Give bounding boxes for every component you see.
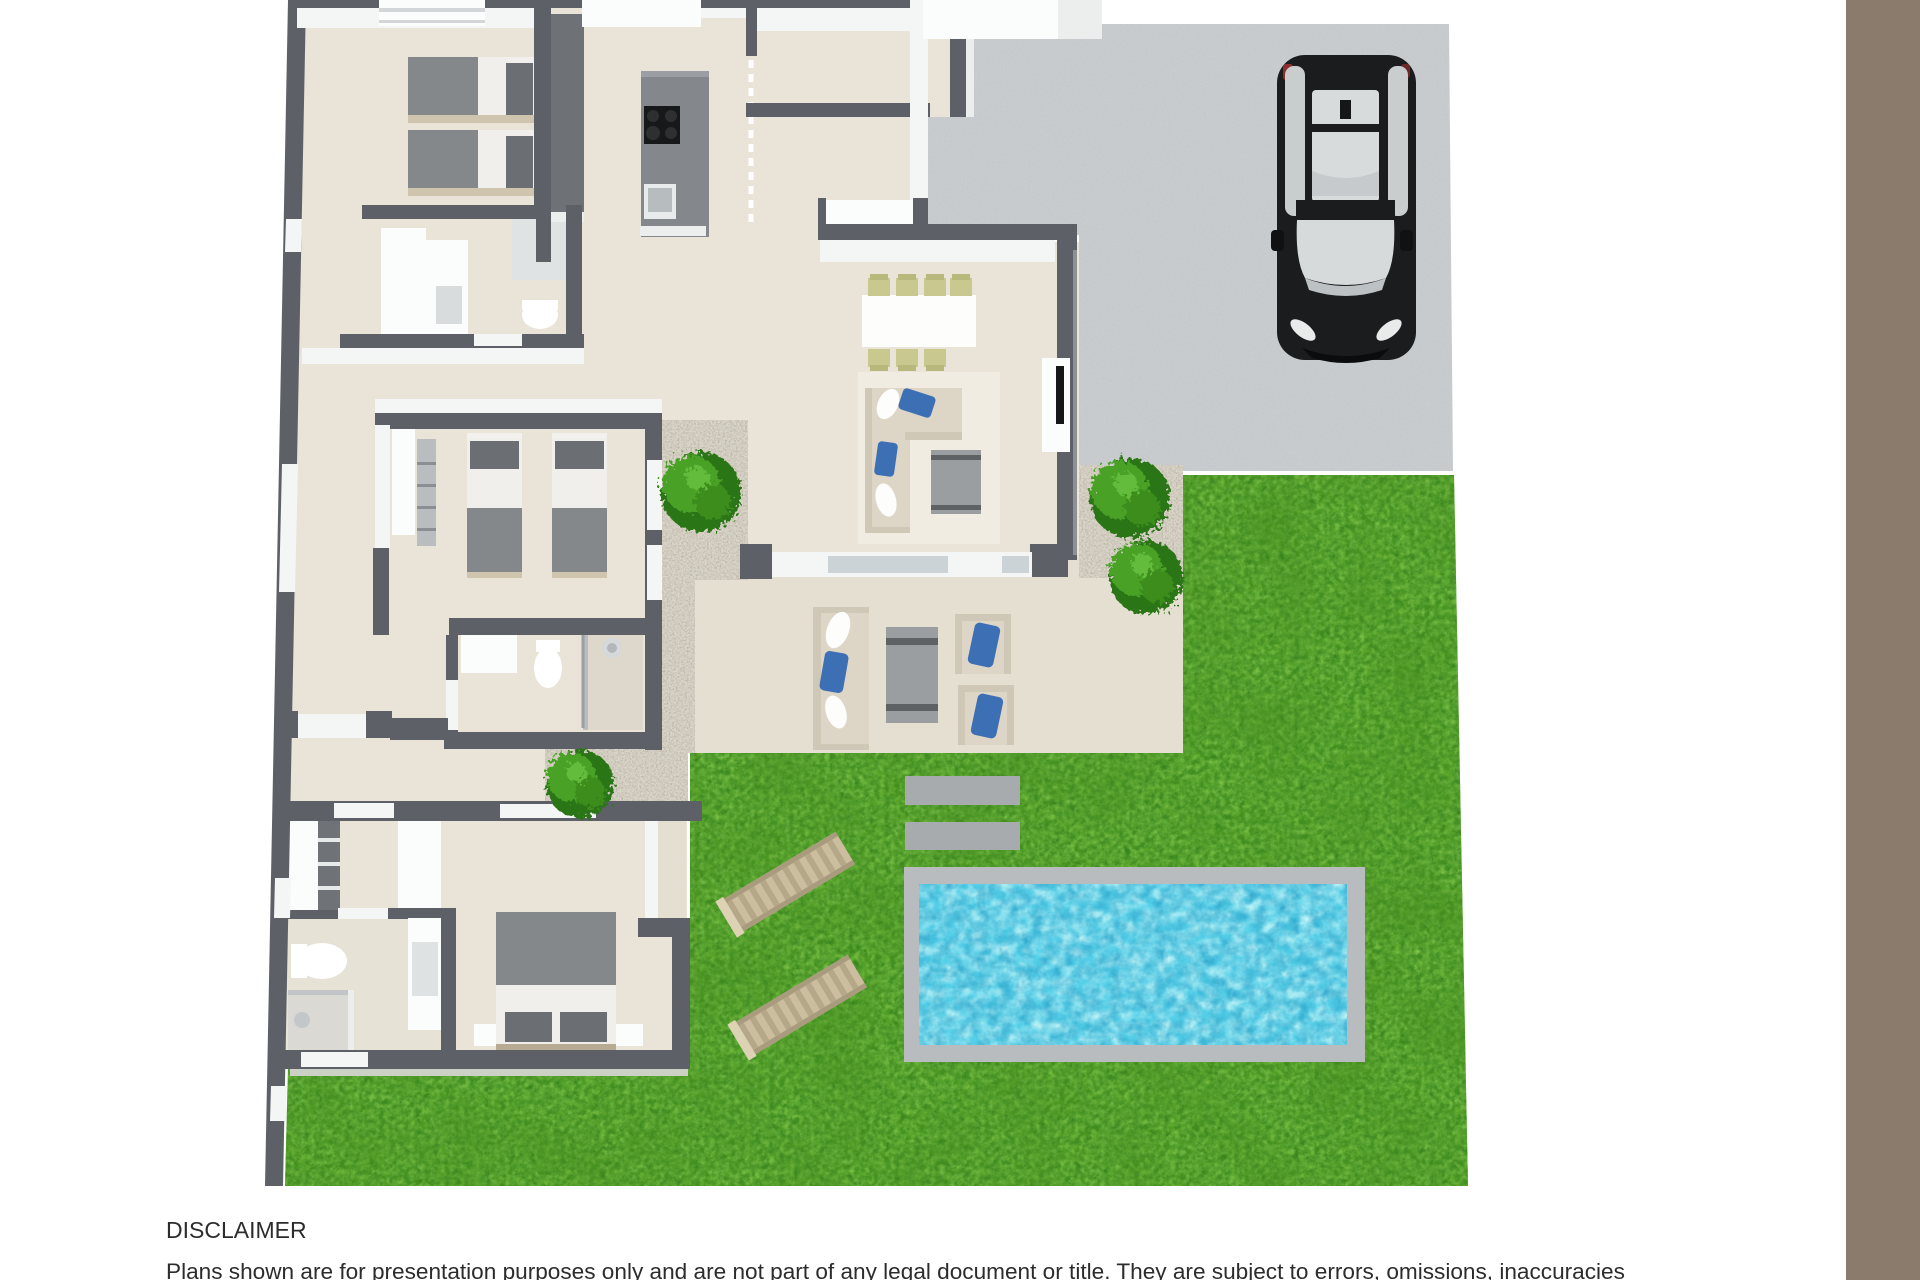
svg-text:DISCLAIMER: DISCLAIMER bbox=[166, 1217, 307, 1243]
svg-text:Plans shown are for presentati: Plans shown are for presentation purpose… bbox=[166, 1259, 1625, 1280]
